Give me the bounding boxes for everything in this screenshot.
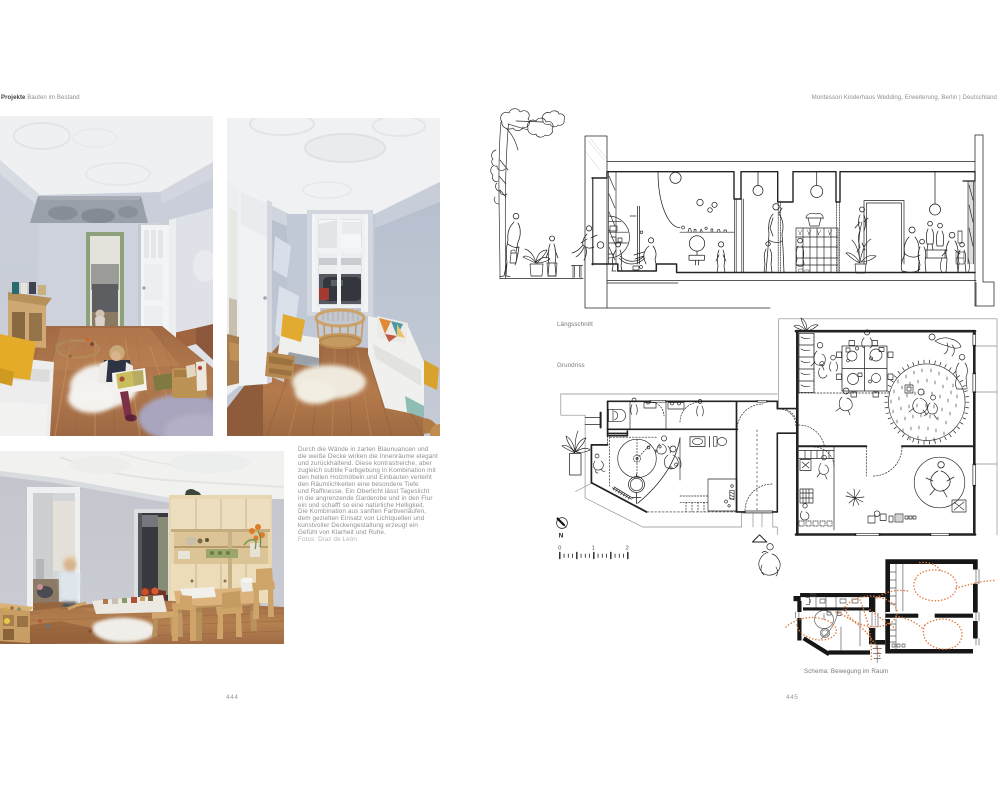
svg-text:0: 0 bbox=[558, 546, 561, 552]
svg-text:2: 2 bbox=[626, 546, 629, 552]
svg-text:N: N bbox=[559, 533, 564, 540]
svg-text:1: 1 bbox=[592, 546, 595, 552]
